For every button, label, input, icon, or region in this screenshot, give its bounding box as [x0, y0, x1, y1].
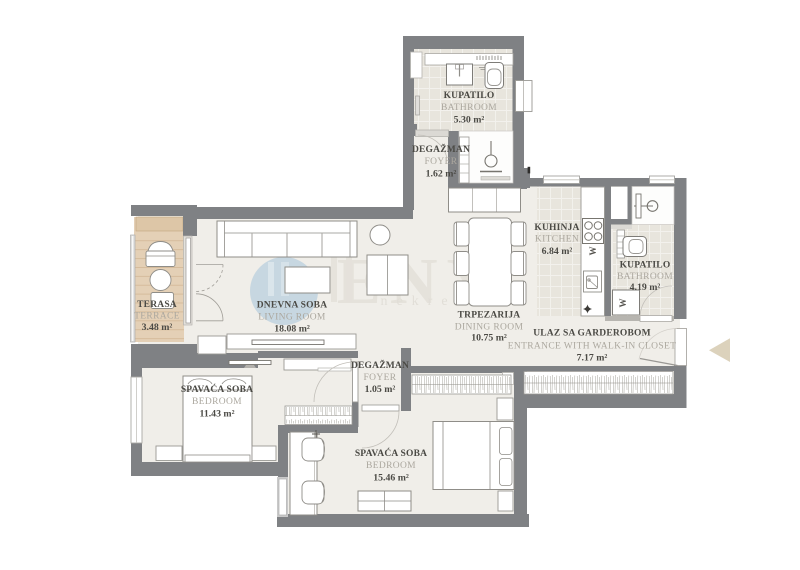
svg-text:SPAVAĆA SOBA: SPAVAĆA SOBA: [355, 447, 427, 459]
svg-text:3.48 m²: 3.48 m²: [142, 322, 173, 333]
svg-text:15.46 m²: 15.46 m²: [373, 473, 409, 484]
svg-text:LIVING ROOM: LIVING ROOM: [258, 313, 326, 323]
svg-text:4.19 m²: 4.19 m²: [630, 282, 661, 293]
svg-text:DNEVNA SOBA: DNEVNA SOBA: [257, 301, 328, 311]
svg-text:W: W: [618, 299, 628, 308]
svg-text:BEDROOM: BEDROOM: [366, 461, 416, 471]
svg-text:KUHINJA: KUHINJA: [534, 223, 579, 233]
svg-text:DINING ROOM: DINING ROOM: [455, 323, 524, 333]
svg-text:KUPATILO: KUPATILO: [620, 261, 671, 271]
svg-text:DEGAŽMAN: DEGAŽMAN: [351, 359, 409, 371]
svg-text:KITCHEN: KITCHEN: [535, 235, 579, 245]
svg-text:TRPEZARIJA: TRPEZARIJA: [458, 311, 521, 321]
svg-text:BATHROOM: BATHROOM: [617, 272, 673, 282]
svg-text:TERASA: TERASA: [137, 300, 177, 310]
svg-text:KUPATILO: KUPATILO: [444, 91, 495, 101]
svg-text:ENTRANCE WITH WALK-IN CLOSET: ENTRANCE WITH WALK-IN CLOSET: [508, 342, 677, 352]
svg-text:6.84 m²: 6.84 m²: [542, 246, 573, 257]
svg-text:W: W: [588, 247, 598, 256]
svg-text:DEGAŽMAN: DEGAŽMAN: [412, 143, 470, 155]
svg-text:SPAVAĆA SOBA: SPAVAĆA SOBA: [181, 383, 253, 395]
svg-text:18.08 m²: 18.08 m²: [274, 324, 310, 335]
svg-text:ULAZ SA GARDEROBOM: ULAZ SA GARDEROBOM: [533, 329, 651, 339]
svg-text:7.17 m²: 7.17 m²: [577, 353, 608, 364]
svg-text:FOYER: FOYER: [425, 157, 458, 167]
svg-text:10.75 m²: 10.75 m²: [471, 333, 507, 344]
svg-text:TERRACE: TERRACE: [134, 312, 180, 322]
svg-text:BEDROOM: BEDROOM: [192, 397, 242, 407]
svg-text:5.30 m²: 5.30 m²: [454, 115, 485, 126]
svg-text:FOYER: FOYER: [364, 373, 397, 383]
svg-text:1.62 m²: 1.62 m²: [426, 169, 457, 180]
svg-text:BATHROOM: BATHROOM: [441, 103, 497, 113]
svg-text:1.05 m²: 1.05 m²: [365, 384, 396, 395]
svg-text:11.43 m²: 11.43 m²: [199, 409, 234, 420]
